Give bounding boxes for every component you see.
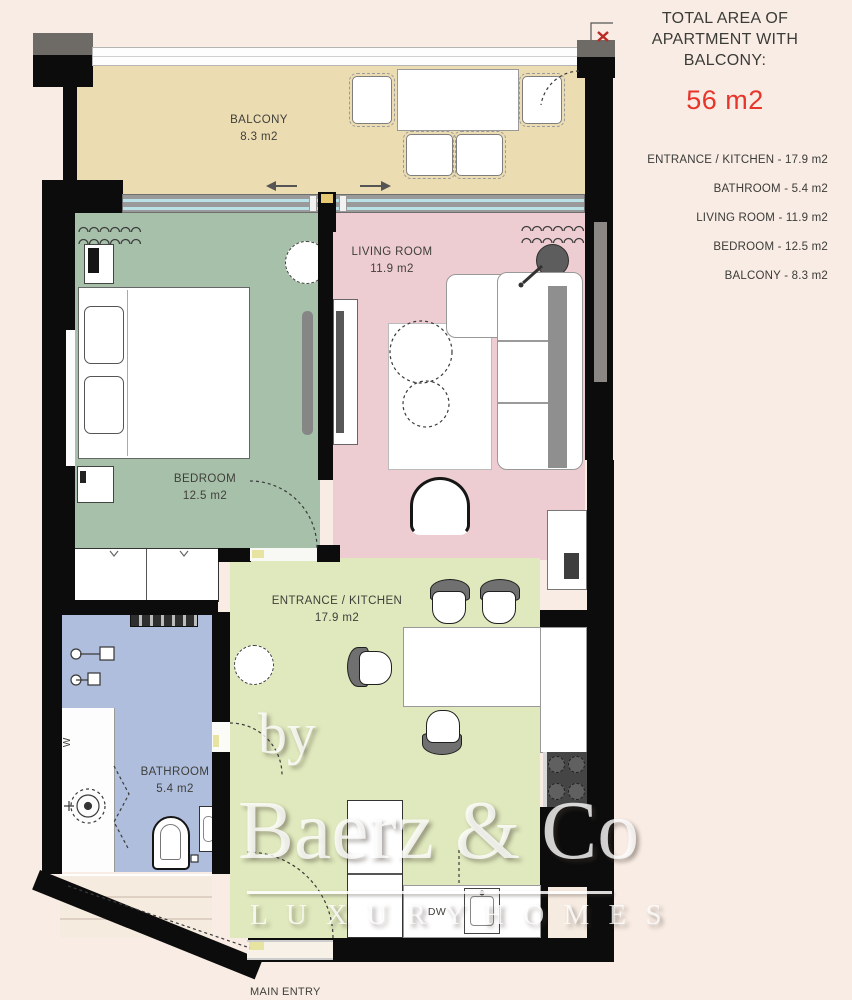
main-entry-label: MAIN ENTRY: [250, 985, 360, 1000]
wardrobe-hanger-tick: [110, 551, 188, 556]
arrow-right-head: [381, 181, 391, 191]
arrow-left-head: [266, 181, 276, 191]
bath-fixture: [88, 673, 100, 685]
room-area-list-item: BALCONY - 8.3 m2: [600, 262, 828, 291]
floor-lamp-stick: [519, 266, 543, 288]
entry-steps-line: [68, 886, 250, 948]
washer-label: W: [61, 732, 76, 752]
toilet-flush-button: [191, 855, 198, 862]
bath-fixture: [100, 647, 114, 660]
room-name: ENTRANCE / KITCHEN: [272, 595, 403, 607]
bathroom-label: BATHROOM 5.4 m2: [115, 764, 235, 797]
sliding-direction-arrows: [266, 181, 391, 191]
coffee-table-circle: [390, 321, 452, 383]
room-area: 12.5 m2: [183, 490, 227, 502]
room-area-list: ENTRANCE / KITCHEN - 17.9 m2 BATHROOM - …: [600, 146, 828, 291]
shower-drain-center: [85, 803, 92, 810]
room-area-list-item: BATHROOM - 5.4 m2: [600, 175, 828, 204]
room-area: 5.4 m2: [156, 783, 194, 795]
coffee-table-circle: [403, 381, 449, 427]
room-name: BALCONY: [230, 114, 288, 126]
entrance-kitchen-label: ENTRANCE / KITCHEN 17.9 m2: [252, 593, 422, 626]
room-area: 8.3 m2: [240, 131, 278, 143]
living-room-label: LIVING ROOM 11.9 m2: [332, 244, 452, 277]
watermark-by: by: [258, 700, 316, 767]
watermark-rule: [247, 891, 612, 894]
total-area-value: 56 m2: [628, 85, 822, 116]
close-mark-icon: [598, 32, 608, 41]
shower-valve-cross: [64, 801, 74, 811]
room-area-list-item: ENTRANCE / KITCHEN - 17.9 m2: [600, 146, 828, 175]
info-panel: TOTAL AREA OF APARTMENT WITH BALCONY: 56…: [628, 8, 828, 116]
balcony-label: BALCONY 8.3 m2: [199, 112, 319, 145]
watermark-tagline: L U X U R Y H O M E S: [250, 899, 668, 932]
room-area: 17.9 m2: [315, 612, 359, 624]
bedroom-label: BEDROOM 12.5 m2: [145, 471, 265, 504]
bath-faucet-icon: [71, 649, 81, 659]
room-name: LIVING ROOM: [351, 246, 432, 258]
room-name: BEDROOM: [174, 473, 236, 485]
room-area: 11.9 m2: [370, 263, 414, 275]
room-area-list-item: BEDROOM - 12.5 m2: [600, 233, 828, 262]
room-area-list-item: LIVING ROOM - 11.9 m2: [600, 204, 828, 233]
balcony-door-swing: [541, 71, 579, 105]
room-name: BATHROOM: [141, 766, 210, 778]
info-title: TOTAL AREA OF APARTMENT WITH BALCONY:: [628, 8, 822, 71]
floor-plan-page: BALCONY 8.3 m2 LIVING ROOM 11.9 m2 BEDRO…: [0, 0, 852, 1000]
watermark-brand: Baerz & Co: [238, 782, 639, 879]
